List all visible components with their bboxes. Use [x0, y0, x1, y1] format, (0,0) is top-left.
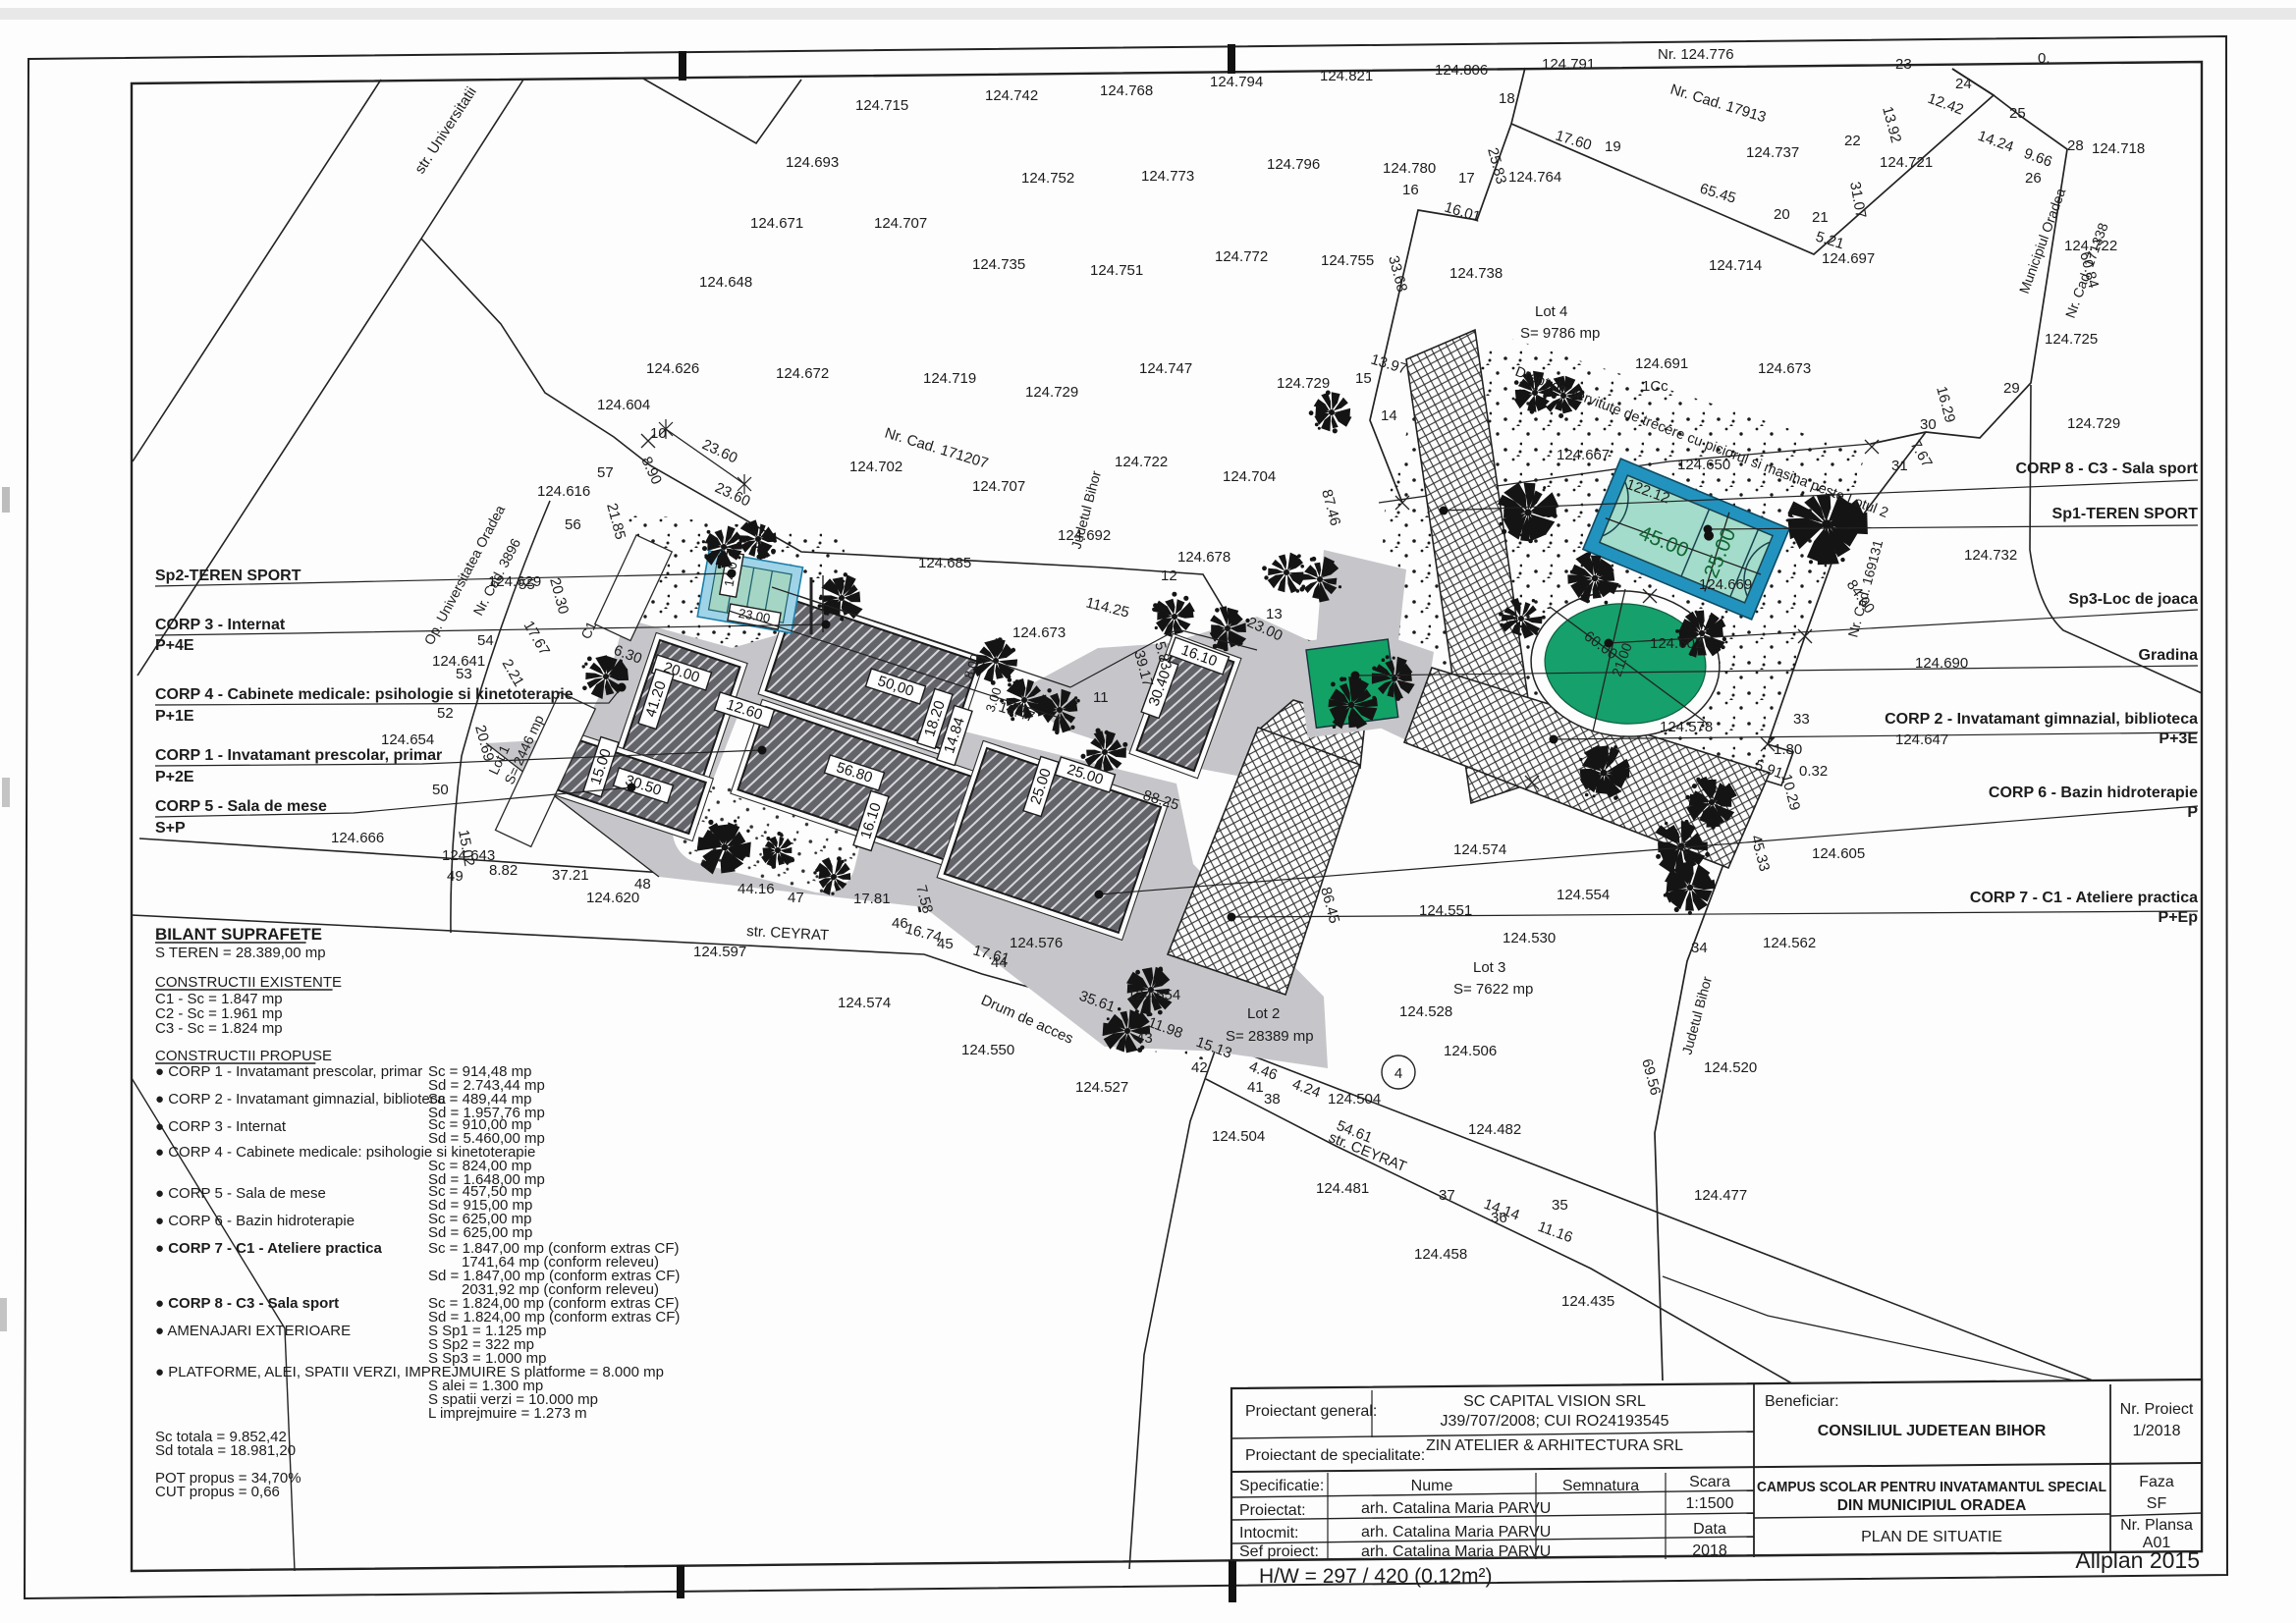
- svg-text:124.554: 124.554: [1127, 987, 1180, 1003]
- svg-text:Specificatie:: Specificatie:: [1239, 1478, 1324, 1494]
- svg-text:124.773: 124.773: [1141, 168, 1194, 185]
- svg-text:26: 26: [2025, 170, 2042, 187]
- svg-text:P+2E: P+2E: [155, 769, 194, 785]
- svg-text:56: 56: [565, 516, 581, 533]
- svg-text:● CORP 1 - Invatamant prescola: ● CORP 1 - Invatamant prescolar, primar: [155, 1063, 422, 1080]
- svg-text:124.678: 124.678: [1177, 549, 1230, 566]
- svg-text:Allplan 2015: Allplan 2015: [2075, 1547, 2200, 1573]
- svg-text:124.742: 124.742: [985, 87, 1038, 104]
- svg-text:124.702: 124.702: [849, 459, 902, 475]
- svg-text:124.554: 124.554: [1557, 887, 1610, 903]
- svg-text:124.755: 124.755: [1321, 252, 1374, 269]
- svg-text:P+4E: P+4E: [155, 637, 194, 654]
- svg-text:H/W = 297 / 420 (0.12m²): H/W = 297 / 420 (0.12m²): [1259, 1565, 1493, 1588]
- svg-text:35: 35: [1552, 1197, 1568, 1214]
- svg-text:Sp3-Loc de joaca: Sp3-Loc de joaca: [2068, 591, 2198, 608]
- svg-text:38: 38: [1264, 1091, 1281, 1108]
- svg-text:19: 19: [1605, 138, 1621, 155]
- svg-text:Sef proiect:: Sef proiect:: [1239, 1543, 1319, 1560]
- svg-text:124.693: 124.693: [786, 154, 839, 171]
- svg-text:124.738: 124.738: [1449, 265, 1503, 282]
- svg-text:Sd totala = 18.981,20: Sd totala = 18.981,20: [155, 1442, 296, 1459]
- svg-text:● CORP 6 - Bazin hidroterapie: ● CORP 6 - Bazin hidroterapie: [155, 1213, 355, 1229]
- svg-text:34: 34: [1691, 940, 1708, 956]
- svg-text:Nr. Proiect: Nr. Proiect: [2120, 1401, 2194, 1418]
- svg-text:52: 52: [437, 705, 454, 722]
- svg-text:124.772: 124.772: [1215, 248, 1268, 265]
- svg-text:P+1E: P+1E: [155, 708, 194, 725]
- svg-text:124.576: 124.576: [1010, 935, 1063, 951]
- svg-text:● AMENAJARI EXTERIOARE: ● AMENAJARI EXTERIOARE: [155, 1323, 351, 1339]
- svg-text:Lot 3: Lot 3: [1473, 959, 1505, 976]
- svg-text:124.791: 124.791: [1542, 56, 1595, 73]
- svg-text:S+P: S+P: [155, 820, 186, 837]
- svg-text:BILANT SUPRAFETE: BILANT SUPRAFETE: [155, 925, 322, 944]
- svg-text:CONSILIUL JUDETEAN BIHOR: CONSILIUL JUDETEAN BIHOR: [1818, 1423, 2047, 1439]
- svg-text:124.551: 124.551: [1419, 902, 1472, 919]
- svg-text:124.794: 124.794: [1210, 74, 1263, 90]
- svg-text:Gradina: Gradina: [2139, 647, 2199, 664]
- svg-text:124.527: 124.527: [1075, 1079, 1128, 1096]
- svg-text:S= 9786 mp: S= 9786 mp: [1520, 325, 1600, 342]
- svg-text:CORP 7 - C1 - Ateliere practic: CORP 7 - C1 - Ateliere practica: [1970, 890, 2198, 906]
- svg-text:124.821: 124.821: [1320, 68, 1373, 84]
- svg-text:8.82: 8.82: [489, 862, 518, 879]
- svg-text:CORP 4 - Cabinete medicale: ps: CORP 4 - Cabinete medicale: psihologie s…: [155, 686, 574, 703]
- svg-text:21: 21: [1812, 209, 1829, 226]
- svg-text:Nume: Nume: [1411, 1478, 1453, 1494]
- svg-text:41: 41: [1247, 1079, 1264, 1096]
- svg-text:124.667: 124.667: [1557, 447, 1610, 463]
- svg-text:CORP 8 - C3 - Sala sport: CORP 8 - C3 - Sala sport: [2015, 460, 2198, 477]
- svg-text:124.574: 124.574: [838, 995, 891, 1011]
- svg-text:124.520: 124.520: [1704, 1059, 1757, 1076]
- svg-text:48: 48: [634, 876, 651, 893]
- svg-text:124.707: 124.707: [874, 215, 927, 232]
- svg-text:2018: 2018: [1692, 1542, 1727, 1559]
- svg-text:SF: SF: [2147, 1495, 2167, 1512]
- svg-text:29: 29: [2003, 380, 2020, 397]
- svg-text:37: 37: [1439, 1187, 1455, 1204]
- svg-text:11: 11: [1093, 689, 1109, 706]
- svg-text:Data: Data: [1693, 1521, 1726, 1538]
- svg-text:4: 4: [1394, 1065, 1402, 1082]
- svg-text:53: 53: [456, 666, 472, 682]
- svg-text:124.806: 124.806: [1435, 62, 1488, 79]
- svg-text:44.16: 44.16: [738, 881, 775, 897]
- svg-text:124.528: 124.528: [1399, 1003, 1452, 1020]
- svg-text:CORP 6 - Bazin hidroterapie: CORP 6 - Bazin hidroterapie: [1989, 784, 2198, 801]
- svg-text:124.764: 124.764: [1508, 169, 1561, 186]
- svg-text:124.715: 124.715: [855, 97, 908, 114]
- svg-text:0.32: 0.32: [1799, 763, 1828, 780]
- svg-text:124.578: 124.578: [1660, 719, 1713, 735]
- svg-text:124.729: 124.729: [1277, 375, 1330, 392]
- svg-text:124.751: 124.751: [1090, 262, 1143, 279]
- svg-text:124.725: 124.725: [2045, 331, 2098, 348]
- svg-text:28: 28: [2067, 137, 2084, 154]
- svg-text:0.: 0.: [2038, 50, 2050, 67]
- svg-text:1/2018: 1/2018: [2133, 1423, 2181, 1439]
- svg-text:124.562: 124.562: [1763, 935, 1816, 951]
- svg-text:124.435: 124.435: [1561, 1293, 1614, 1310]
- svg-text:DIN MUNICIPIUL ORADEA: DIN MUNICIPIUL ORADEA: [1837, 1497, 2027, 1514]
- svg-text:CORP 2 - Invatamant gimnazial,: CORP 2 - Invatamant gimnazial, bibliotec…: [1885, 711, 2198, 728]
- svg-text:124.707: 124.707: [972, 478, 1025, 495]
- svg-text:S= 28389 mp: S= 28389 mp: [1226, 1028, 1314, 1045]
- svg-text:124.506: 124.506: [1444, 1043, 1497, 1059]
- svg-text:42: 42: [1191, 1059, 1208, 1076]
- svg-text:arh. Catalina Maria PARVU: arh. Catalina Maria PARVU: [1361, 1543, 1551, 1560]
- svg-text:● CORP 2 - Invatamant gimnazia: ● CORP 2 - Invatamant gimnazial, bibliot…: [155, 1091, 446, 1108]
- svg-text:S TEREN = 28.389,00 mp: S TEREN = 28.389,00 mp: [155, 945, 326, 961]
- svg-text:24: 24: [1955, 76, 1972, 92]
- svg-text:55: 55: [519, 576, 535, 593]
- svg-text:124.605: 124.605: [1812, 845, 1865, 862]
- svg-text:33: 33: [1793, 711, 1810, 728]
- svg-text:Proiectant general:: Proiectant general:: [1245, 1403, 1377, 1420]
- svg-text:J39/707/2008; CUI RO24193545: J39/707/2008; CUI RO24193545: [1440, 1413, 1668, 1430]
- svg-text:1.80: 1.80: [1774, 741, 1802, 758]
- svg-text:CUT propus = 0,66: CUT propus = 0,66: [155, 1484, 280, 1500]
- svg-text:Sp2-TEREN SPORT: Sp2-TEREN SPORT: [155, 568, 301, 584]
- svg-text:124.768: 124.768: [1100, 82, 1153, 99]
- svg-text:124.718: 124.718: [2092, 140, 2145, 157]
- svg-text:124.697: 124.697: [1822, 250, 1875, 267]
- svg-text:124.721: 124.721: [1880, 154, 1933, 171]
- svg-text:CORP 3 - Internat: CORP 3 - Internat: [155, 617, 286, 633]
- svg-text:23: 23: [1895, 56, 1912, 73]
- svg-text:124.685: 124.685: [918, 555, 971, 571]
- svg-text:arh. Catalina Maria PARVU: arh. Catalina Maria PARVU: [1361, 1500, 1551, 1517]
- svg-text:124.737: 124.737: [1746, 144, 1799, 161]
- svg-text:Sd = 625,00 mp: Sd = 625,00 mp: [428, 1224, 532, 1241]
- svg-text:Nr. 124.776: Nr. 124.776: [1658, 46, 1734, 63]
- svg-text:124.714: 124.714: [1709, 257, 1762, 274]
- svg-text:124.704: 124.704: [1223, 468, 1276, 485]
- svg-text:47: 47: [788, 890, 804, 906]
- svg-text:124.672: 124.672: [776, 365, 829, 382]
- svg-text:57: 57: [597, 464, 614, 481]
- svg-text:1:1500: 1:1500: [1686, 1495, 1734, 1512]
- svg-text:124.574: 124.574: [1453, 841, 1506, 858]
- svg-text:ZIN ATELIER & ARHITECTURA SRL: ZIN ATELIER & ARHITECTURA SRL: [1426, 1437, 1683, 1454]
- svg-text:124.504: 124.504: [1212, 1128, 1265, 1145]
- svg-text:50: 50: [432, 782, 449, 798]
- svg-text:● CORP 5 - Sala de mese: ● CORP 5 - Sala de mese: [155, 1185, 326, 1202]
- svg-text:124.796: 124.796: [1267, 156, 1320, 173]
- svg-text:124.550: 124.550: [961, 1042, 1014, 1058]
- svg-text:124.482: 124.482: [1468, 1121, 1521, 1138]
- svg-text:124.626: 124.626: [646, 360, 699, 377]
- svg-text:● CORP 8 - C3 - Sala sport: ● CORP 8 - C3 - Sala sport: [155, 1295, 339, 1312]
- svg-text:124.671: 124.671: [750, 215, 803, 232]
- svg-text:CONSTRUCTII PROPUSE: CONSTRUCTII PROPUSE: [155, 1048, 332, 1064]
- svg-text:Beneficiar:: Beneficiar:: [1765, 1393, 1839, 1410]
- svg-text:Proiectat:: Proiectat:: [1239, 1502, 1306, 1519]
- svg-text:124.458: 124.458: [1414, 1246, 1467, 1263]
- svg-text:arh. Catalina Maria PARVU: arh. Catalina Maria PARVU: [1361, 1524, 1551, 1541]
- svg-text:124.673: 124.673: [1758, 360, 1811, 377]
- svg-text:124.719: 124.719: [923, 370, 976, 387]
- svg-text:124.597: 124.597: [693, 944, 746, 960]
- svg-text:Scara: Scara: [1689, 1474, 1730, 1490]
- svg-text:14: 14: [1381, 407, 1397, 424]
- svg-text:124.690: 124.690: [1915, 655, 1968, 672]
- svg-text:124.666: 124.666: [331, 830, 384, 846]
- svg-text:43: 43: [1136, 1030, 1153, 1047]
- svg-text:22: 22: [1844, 133, 1861, 149]
- svg-text:124.604: 124.604: [597, 397, 650, 413]
- svg-text:13: 13: [1266, 606, 1283, 622]
- svg-text:124.620: 124.620: [586, 890, 639, 906]
- svg-text:CONSTRUCTII EXISTENTE: CONSTRUCTII EXISTENTE: [155, 974, 342, 991]
- svg-text:L imprejmuire = 1.273 m: L imprejmuire = 1.273 m: [428, 1405, 587, 1422]
- svg-text:124.673: 124.673: [1012, 624, 1066, 641]
- svg-text:● CORP 7 - C1 - Ateliere pract: ● CORP 7 - C1 - Ateliere practica: [155, 1240, 382, 1257]
- svg-text:● PLATFORME, ALEI, SPATII VERZ: ● PLATFORME, ALEI, SPATII VERZI, IMPREJM…: [155, 1364, 664, 1380]
- svg-text:124.780: 124.780: [1383, 160, 1436, 177]
- svg-text:124.504: 124.504: [1328, 1091, 1381, 1108]
- svg-text:124.691: 124.691: [1635, 355, 1688, 372]
- svg-text:PLAN DE SITUATIE: PLAN DE SITUATIE: [1861, 1529, 2002, 1545]
- svg-text:124.654: 124.654: [381, 731, 434, 748]
- svg-text:124.481: 124.481: [1316, 1180, 1369, 1197]
- svg-text:124.669: 124.669: [1699, 576, 1752, 593]
- svg-text:20: 20: [1774, 206, 1790, 223]
- svg-text:Faza: Faza: [2139, 1474, 2174, 1490]
- svg-text:49: 49: [447, 868, 464, 885]
- svg-text:124.729: 124.729: [2067, 415, 2120, 432]
- svg-text:124.732: 124.732: [1964, 547, 2017, 564]
- svg-text:CAMPUS SCOLAR PENTRU INVATAMAN: CAMPUS SCOLAR PENTRU INVATAMANTUL SPECIA…: [1757, 1479, 2106, 1495]
- svg-text:12: 12: [1161, 568, 1177, 584]
- svg-text:1Cc: 1Cc: [1642, 378, 1668, 395]
- svg-text:Semnatura: Semnatura: [1562, 1478, 1639, 1494]
- svg-text:● CORP 3 - Internat: ● CORP 3 - Internat: [155, 1118, 287, 1135]
- svg-text:124.602: 124.602: [1650, 635, 1703, 652]
- svg-text:16: 16: [1402, 182, 1419, 198]
- svg-text:CORP 5 - Sala de mese: CORP 5 - Sala de mese: [155, 798, 327, 815]
- svg-text:30: 30: [1920, 416, 1937, 433]
- svg-text:124.477: 124.477: [1694, 1187, 1747, 1204]
- svg-text:37.21: 37.21: [552, 867, 589, 884]
- svg-text:CORP 1 - Invatamant prescolar,: CORP 1 - Invatamant prescolar, primar: [155, 747, 442, 764]
- svg-text:18: 18: [1499, 90, 1515, 107]
- svg-text:10: 10: [650, 425, 667, 442]
- svg-text:Nr. Plansa: Nr. Plansa: [2120, 1517, 2193, 1534]
- svg-text:Intocmit:: Intocmit:: [1239, 1525, 1298, 1542]
- svg-text:124.729: 124.729: [1025, 384, 1078, 401]
- svg-text:17.81: 17.81: [853, 891, 891, 907]
- svg-text:124.722: 124.722: [1115, 454, 1168, 470]
- svg-text:124.647: 124.647: [1895, 731, 1948, 748]
- svg-text:54: 54: [477, 632, 494, 649]
- svg-text:17: 17: [1458, 170, 1475, 187]
- svg-text:124.752: 124.752: [1021, 170, 1074, 187]
- svg-text:124.530: 124.530: [1503, 930, 1556, 947]
- svg-text:124.735: 124.735: [972, 256, 1025, 273]
- svg-text:124.648: 124.648: [699, 274, 752, 291]
- svg-text:Lot 4: Lot 4: [1535, 303, 1567, 320]
- svg-text:Sp1-TEREN SPORT: Sp1-TEREN SPORT: [2052, 506, 2199, 522]
- svg-text:SC CAPITAL VISION SRL: SC CAPITAL VISION SRL: [1463, 1393, 1646, 1410]
- svg-text:25: 25: [2009, 105, 2026, 122]
- svg-text:31: 31: [1891, 458, 1908, 474]
- svg-text:Proiectant de specialitate:: Proiectant de specialitate:: [1245, 1447, 1425, 1464]
- svg-text:S= 7622 mp: S= 7622 mp: [1453, 981, 1533, 998]
- svg-text:124.747: 124.747: [1139, 360, 1192, 377]
- svg-text:Lot 2: Lot 2: [1247, 1005, 1280, 1022]
- svg-text:C3 - Sc = 1.824 mp: C3 - Sc = 1.824 mp: [155, 1020, 283, 1037]
- svg-text:15: 15: [1355, 370, 1372, 387]
- svg-text:124.616: 124.616: [537, 483, 590, 500]
